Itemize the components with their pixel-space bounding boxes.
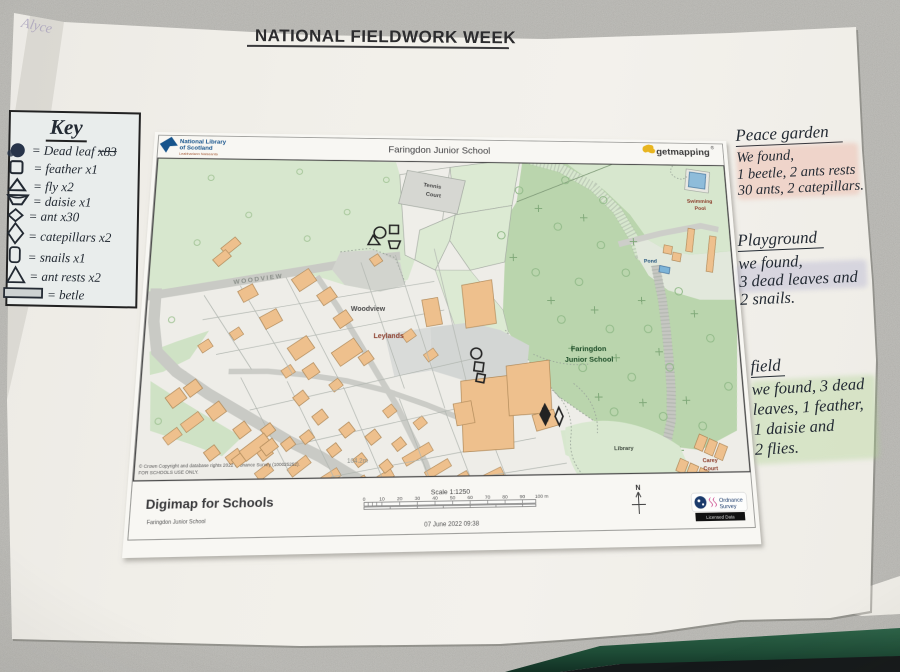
svg-text:Carey: Carey	[702, 458, 718, 465]
svg-text:Digimap for Schools: Digimap for Schools	[145, 496, 274, 512]
svg-text:10: 10	[379, 496, 385, 502]
svg-text:Faringdon Junior School: Faringdon Junior School	[388, 145, 490, 156]
svg-text:80: 80	[502, 494, 508, 500]
svg-text:FOR SCHOOLS USE ONLY.: FOR SCHOOLS USE ONLY.	[138, 469, 199, 476]
svg-text:Court: Court	[703, 466, 718, 473]
svg-text:104.2m: 104.2m	[347, 458, 368, 465]
svg-text:Licensed Data: Licensed Data	[706, 514, 735, 520]
svg-text:Woodview: Woodview	[351, 306, 386, 313]
svg-text:Pool: Pool	[695, 206, 707, 212]
svg-text:50: 50	[450, 495, 456, 501]
svg-text:60: 60	[467, 494, 473, 500]
svg-text:Library: Library	[614, 446, 634, 453]
svg-text:getmapping: getmapping	[656, 147, 710, 158]
svg-text:Pond: Pond	[644, 259, 657, 265]
svg-text:30: 30	[415, 495, 421, 501]
svg-text:Faringdon Junior School: Faringdon Junior School	[146, 518, 205, 525]
svg-text:90: 90	[520, 494, 526, 500]
svg-text:Leylands: Leylands	[373, 333, 404, 340]
svg-text:®: ®	[710, 145, 714, 151]
svg-text:Leabharlann Naiseanta: Leabharlann Naiseanta	[179, 152, 218, 156]
svg-text:20: 20	[397, 496, 403, 502]
svg-text:40: 40	[432, 495, 438, 501]
svg-text:Faringdon: Faringdon	[571, 346, 607, 353]
svg-text:0: 0	[363, 496, 366, 502]
svg-text:Swimming: Swimming	[687, 199, 713, 205]
svg-text:100 m: 100 m	[535, 493, 549, 499]
svg-text:N: N	[635, 484, 641, 492]
svg-text:70: 70	[485, 494, 491, 500]
svg-text:07 June 2022 09:38: 07 June 2022 09:38	[424, 521, 479, 529]
svg-text:of Scotland: of Scotland	[179, 146, 213, 152]
svg-text:Survey: Survey	[719, 504, 737, 511]
svg-text:Junior School: Junior School	[565, 356, 614, 364]
